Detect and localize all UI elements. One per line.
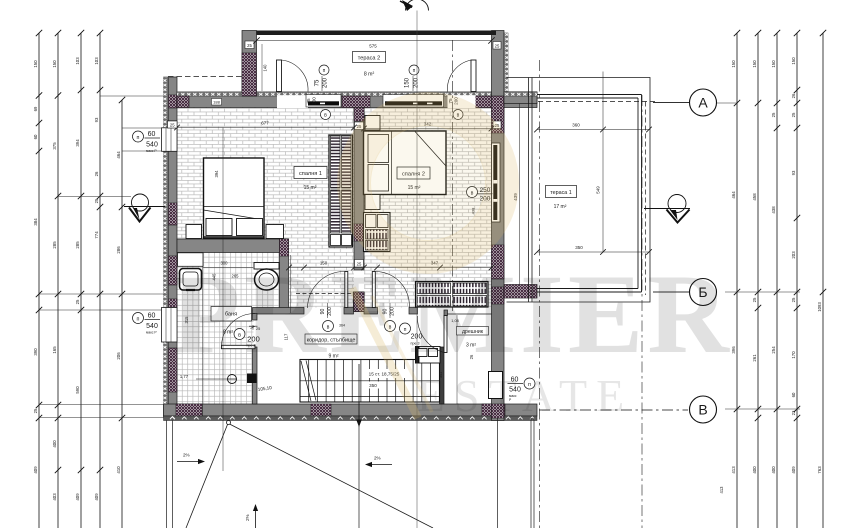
- svg-text:26: 26: [94, 171, 99, 176]
- svg-text:60: 60: [33, 134, 38, 139]
- svg-text:93: 93: [94, 117, 99, 122]
- svg-text:409: 409: [791, 466, 796, 474]
- svg-text:25: 25: [752, 297, 757, 302]
- svg-text:549: 549: [596, 186, 601, 194]
- svg-text:23: 23: [791, 410, 796, 415]
- svg-text:774: 774: [94, 231, 99, 239]
- svg-text:8 m²: 8 m²: [364, 72, 375, 78]
- svg-text:60: 60: [791, 392, 796, 397]
- svg-text:384: 384: [33, 218, 38, 226]
- svg-text:464: 464: [116, 151, 121, 159]
- svg-text:75: 75: [315, 79, 321, 86]
- svg-text:тераса 2: тераса 2: [358, 56, 380, 62]
- svg-text:26: 26: [791, 93, 796, 98]
- svg-text:25: 25: [75, 299, 80, 304]
- svg-text:93: 93: [791, 170, 796, 175]
- svg-text:409: 409: [94, 493, 99, 501]
- svg-text:25: 25: [495, 43, 500, 48]
- svg-text:413: 413: [719, 486, 724, 494]
- svg-text:763: 763: [817, 466, 822, 474]
- svg-text:103: 103: [94, 57, 99, 65]
- svg-text:150: 150: [731, 60, 736, 68]
- svg-text:ESTATE: ESTATE: [417, 370, 633, 421]
- svg-text:150: 150: [405, 77, 411, 88]
- svg-text:2%: 2%: [183, 453, 190, 458]
- svg-text:140: 140: [263, 64, 268, 72]
- svg-text:200: 200: [414, 77, 420, 88]
- svg-text:75: 75: [306, 98, 311, 104]
- svg-text:25: 25: [791, 112, 796, 117]
- svg-text:575: 575: [369, 44, 377, 49]
- svg-text:394: 394: [214, 170, 219, 178]
- svg-text:в: в: [324, 113, 327, 119]
- svg-text:458: 458: [752, 193, 757, 201]
- svg-text:203: 203: [791, 251, 796, 259]
- svg-text:390: 390: [33, 348, 38, 356]
- svg-text:360: 360: [572, 123, 580, 128]
- svg-text:25: 25: [170, 123, 175, 128]
- svg-text:1093: 1093: [817, 302, 822, 312]
- svg-text:206: 206: [116, 352, 121, 360]
- svg-text:170: 170: [791, 351, 796, 359]
- svg-text:540: 540: [146, 142, 158, 149]
- svg-text:103: 103: [75, 57, 80, 65]
- svg-text:590: 590: [75, 386, 80, 394]
- svg-text:200: 200: [312, 97, 317, 105]
- svg-text:В: В: [698, 402, 707, 418]
- svg-text:макс Р: макс Р: [146, 331, 157, 335]
- svg-text:60: 60: [148, 313, 156, 320]
- svg-text:409: 409: [75, 493, 80, 501]
- svg-text:п: п: [137, 135, 140, 141]
- svg-text:150: 150: [752, 60, 757, 68]
- svg-text:409: 409: [33, 466, 38, 474]
- svg-text:438: 438: [771, 206, 776, 214]
- svg-text:150: 150: [33, 60, 38, 68]
- svg-text:350: 350: [369, 383, 377, 388]
- svg-text:17 m²: 17 m²: [554, 204, 567, 210]
- svg-text:394: 394: [75, 139, 80, 147]
- svg-text:А: А: [698, 95, 708, 111]
- svg-text:403: 403: [52, 493, 57, 501]
- svg-text:254: 254: [771, 346, 776, 354]
- svg-text:540: 540: [146, 323, 158, 330]
- svg-text:25: 25: [247, 43, 252, 48]
- svg-text:25: 25: [771, 112, 776, 117]
- svg-text:285: 285: [52, 241, 57, 249]
- svg-text:макс Р: макс Р: [146, 149, 157, 153]
- svg-text:2%: 2%: [374, 456, 381, 461]
- svg-text:25: 25: [791, 297, 796, 302]
- svg-text:25: 25: [33, 408, 38, 413]
- svg-text:285: 285: [75, 241, 80, 249]
- svg-text:тераса 1: тераса 1: [550, 190, 572, 196]
- svg-text:150: 150: [771, 60, 776, 68]
- svg-text:150: 150: [52, 60, 57, 68]
- svg-text:165: 165: [52, 346, 57, 354]
- svg-text:спалня 1: спалня 1: [299, 171, 322, 177]
- svg-text:464: 464: [731, 191, 736, 199]
- svg-text:400: 400: [52, 440, 57, 448]
- svg-text:п: п: [413, 68, 416, 74]
- svg-text:286: 286: [116, 246, 121, 254]
- svg-text:150: 150: [791, 57, 796, 65]
- svg-text:25: 25: [94, 198, 99, 203]
- svg-text:400: 400: [752, 466, 757, 474]
- svg-text:375: 375: [52, 142, 57, 150]
- svg-text:2%: 2%: [245, 514, 250, 521]
- svg-text:200: 200: [323, 77, 329, 88]
- svg-text:188: 188: [213, 100, 220, 105]
- svg-text:261: 261: [752, 354, 757, 362]
- svg-text:69: 69: [33, 106, 38, 111]
- svg-text:410: 410: [116, 466, 121, 474]
- svg-text:п: п: [137, 317, 140, 323]
- svg-text:677: 677: [261, 121, 269, 126]
- svg-text:350: 350: [575, 245, 583, 250]
- svg-text:400: 400: [771, 466, 776, 474]
- svg-text:413: 413: [731, 466, 736, 474]
- svg-text:15 m²: 15 m²: [304, 185, 317, 191]
- svg-text:60: 60: [148, 131, 156, 138]
- svg-text:п: п: [323, 68, 326, 74]
